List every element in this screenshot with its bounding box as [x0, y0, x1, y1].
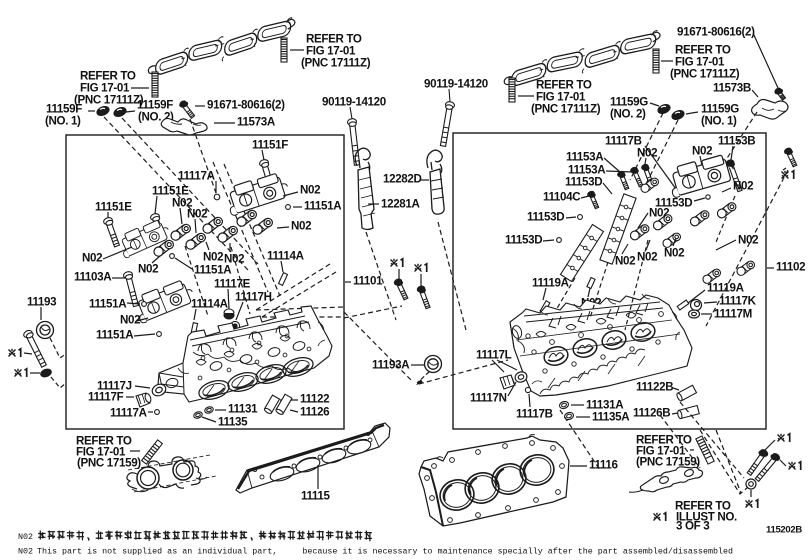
svg-text:11153A: 11153A — [566, 151, 604, 164]
svg-text:3 OF 3: 3 OF 3 — [676, 520, 710, 533]
svg-text:(PNC 17159): (PNC 17159) — [77, 457, 141, 470]
svg-text:11117A: 11117A — [178, 170, 216, 183]
svg-text:90119-14120: 90119-14120 — [424, 78, 488, 91]
svg-text:11153D: 11153D — [505, 234, 542, 247]
svg-text:(PNC 17111Z): (PNC 17111Z) — [670, 68, 740, 81]
svg-text:N02: N02 — [224, 253, 244, 266]
svg-text:91671-80616(2): 91671-80616(2) — [677, 26, 755, 39]
svg-text:11115: 11115 — [301, 490, 330, 503]
svg-text:11119A: 11119A — [532, 277, 570, 290]
svg-text:N02: N02 — [82, 252, 102, 265]
svg-text:11122B: 11122B — [636, 381, 673, 394]
svg-text:11153D: 11153D — [527, 211, 564, 224]
svg-text:(PNC 17159): (PNC 17159) — [636, 456, 700, 469]
svg-text:N02: N02 — [692, 145, 712, 158]
svg-text:(NO. 2): (NO. 2) — [610, 108, 646, 121]
svg-text:N02: N02 — [18, 547, 33, 557]
svg-text:11135A: 11135A — [592, 411, 630, 424]
svg-text:11151A: 11151A — [89, 298, 127, 311]
svg-text:11153D: 11153D — [565, 176, 602, 189]
svg-text:N02: N02 — [637, 251, 657, 264]
svg-text:N02: N02 — [120, 314, 140, 327]
svg-text:N02: N02 — [733, 180, 753, 193]
svg-text:N02: N02 — [615, 255, 635, 268]
svg-text:11573B: 11573B — [713, 82, 751, 95]
svg-text:11126B: 11126B — [633, 407, 670, 420]
svg-text:11151A: 11151A — [96, 329, 134, 342]
svg-text:11114A: 11114A — [267, 250, 305, 263]
svg-text:N02: N02 — [138, 263, 158, 276]
svg-text:12282D: 12282D — [383, 173, 422, 186]
svg-text:This part is not supplied as a: This part is not supplied as an individu… — [37, 547, 733, 557]
svg-text:90119-14120: 90119-14120 — [322, 96, 386, 109]
svg-text:11135: 11135 — [218, 416, 248, 429]
svg-text:11131: 11131 — [228, 403, 258, 416]
svg-text:N02: N02 — [300, 184, 320, 197]
svg-text:11126: 11126 — [300, 406, 330, 419]
svg-text:11117A: 11117A — [110, 407, 148, 420]
svg-text:(PNC 17111Z): (PNC 17111Z) — [74, 94, 144, 107]
svg-text:(NO. 1): (NO. 1) — [701, 115, 737, 128]
svg-text:11101: 11101 — [353, 275, 383, 288]
svg-text:(PNC 17111Z): (PNC 17111Z) — [301, 57, 371, 70]
svg-text:11193: 11193 — [27, 296, 57, 309]
svg-text:11117B: 11117B — [516, 408, 553, 421]
svg-text:11117F: 11117F — [88, 391, 124, 404]
svg-text:12281A: 12281A — [381, 198, 420, 211]
svg-text:11117M: 11117M — [714, 308, 752, 321]
svg-text:11117K: 11117K — [719, 295, 757, 308]
svg-text:N02: N02 — [203, 251, 223, 264]
svg-text:11151A: 11151A — [304, 200, 342, 213]
svg-text:11117H: 11117H — [235, 291, 272, 304]
svg-text:11117L: 11117L — [476, 349, 512, 362]
svg-text:11117E: 11117E — [214, 278, 251, 291]
svg-text:11117N: 11117N — [470, 392, 507, 405]
svg-text:11102: 11102 — [776, 261, 805, 274]
svg-text:N02: N02 — [18, 532, 33, 542]
svg-text:11151E: 11151E — [95, 201, 132, 214]
svg-text:N02: N02 — [637, 147, 657, 160]
svg-text:(PNC 17111Z): (PNC 17111Z) — [531, 103, 601, 116]
svg-text:11151F: 11151F — [252, 139, 288, 152]
svg-text:(NO. 1): (NO. 1) — [45, 115, 81, 128]
svg-text:91671-80616(2): 91671-80616(2) — [207, 99, 285, 112]
svg-text:11122: 11122 — [300, 393, 329, 406]
svg-text:11114A: 11114A — [191, 298, 229, 311]
svg-text:11573A: 11573A — [237, 116, 276, 129]
svg-text:115202B: 115202B — [766, 525, 802, 536]
svg-text:N02: N02 — [664, 247, 684, 260]
svg-text:11104C: 11104C — [543, 191, 581, 204]
svg-text:11116: 11116 — [589, 459, 618, 472]
svg-text:11193A: 11193A — [372, 359, 410, 372]
svg-text:11103A: 11103A — [74, 271, 112, 284]
svg-text:N02: N02 — [291, 220, 311, 233]
svg-text:11153B: 11153B — [718, 135, 755, 148]
svg-text:N02: N02 — [187, 208, 207, 221]
